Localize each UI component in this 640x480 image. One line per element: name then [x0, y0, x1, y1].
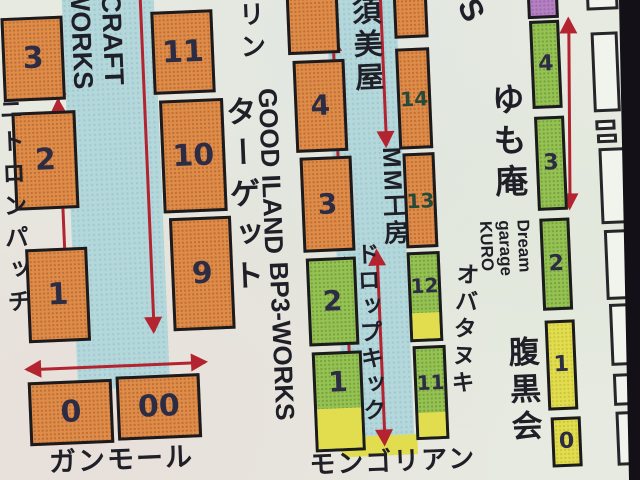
booth-yellow-section — [317, 407, 363, 449]
booth-b-10: 10 — [159, 98, 228, 214]
edge-letter-s: S — [450, 0, 492, 27]
booth-number: 1 — [328, 368, 349, 397]
booth-number: 11 — [162, 36, 205, 68]
booth-b-11: 11 — [150, 9, 215, 95]
booth-c-partial — [285, 0, 340, 55]
booth-number: 0 — [60, 397, 82, 428]
area-label-mongolian: モンゴリアン — [309, 444, 477, 480]
booth-number: 2 — [34, 145, 56, 176]
edge-booth-outline — [591, 31, 621, 112]
booth-number: 1 — [553, 354, 569, 377]
booth-gunmall-0: 0 — [28, 379, 115, 446]
booth-d-12: 12 — [407, 251, 444, 342]
booth-c-2: 2 — [306, 257, 360, 347]
booth-number: 0 — [559, 431, 575, 454]
area-label-gun-mall: ガンモール — [48, 441, 194, 478]
booth-d-14: 14 — [395, 47, 433, 149]
area-label-dream-garage-kuro: Dream garage KURO — [475, 219, 533, 277]
booth-e-4: 4 — [529, 20, 563, 109]
area-label-sumiya: 須美屋 — [346, 0, 383, 96]
area-label-good-iland: GOOD ILAND — [252, 87, 289, 254]
booth-number: 3 — [317, 190, 338, 219]
map-content: 3 2 1 11 10 9 4 3 2 1 14 13 12 11 4 3 2 … — [0, 0, 640, 480]
booth-e-purple — [526, 0, 559, 19]
booth-number: 12 — [410, 275, 439, 296]
area-label-haragurokai: 腹黒会 — [502, 335, 542, 447]
booth-number: 11 — [416, 372, 445, 393]
edge-booth-outline — [585, 0, 618, 11]
booth-number: 4 — [538, 53, 554, 76]
booth-d-partial — [392, 0, 428, 39]
booth-c-3: 3 — [300, 156, 356, 253]
booth-c-4: 4 — [292, 59, 348, 153]
booth-a-1: 1 — [25, 247, 91, 344]
booth-map-photo: 3 2 1 11 10 9 4 3 2 1 14 13 12 11 4 3 2 … — [0, 0, 640, 480]
booth-e-1: 1 — [545, 319, 579, 410]
booth-e-0: 0 — [551, 416, 583, 467]
area-label-mm-kobo: MM工房 — [376, 146, 409, 247]
area-label-bp3-works: BP3-WORKS — [263, 261, 300, 421]
booth-e-3: 3 — [534, 116, 568, 211]
edge-booth-outline — [597, 133, 617, 143]
booth-d-11: 11 — [413, 345, 450, 440]
booth-number: 4 — [310, 91, 331, 120]
area-label-yumoan: ゆも庵 — [486, 81, 529, 205]
booth-number: 9 — [191, 258, 213, 289]
booth-e-2: 2 — [539, 218, 573, 311]
booth-number: 00 — [137, 391, 180, 423]
area-label-rin: リン — [234, 0, 267, 65]
area-label-obatanuki: オバタヌキ — [447, 262, 480, 398]
edge-booth-outline — [595, 120, 615, 131]
booth-a-3: 3 — [0, 16, 65, 103]
booth-number: 3 — [543, 152, 559, 175]
booth-number: 2 — [548, 253, 564, 276]
booth-number: 2 — [322, 287, 343, 316]
booth-yellow-section — [418, 412, 446, 437]
booth-number: 13 — [406, 190, 435, 211]
booth-yellow-section — [412, 312, 440, 339]
booth-number: 10 — [172, 140, 215, 172]
area-label-craft-works: -CRAFT WORKS — [63, 0, 129, 90]
booth-number: 1 — [47, 280, 69, 311]
booth-number: 3 — [22, 43, 44, 74]
booth-gunmall-00: 00 — [116, 373, 203, 440]
booth-number: 14 — [400, 88, 429, 109]
